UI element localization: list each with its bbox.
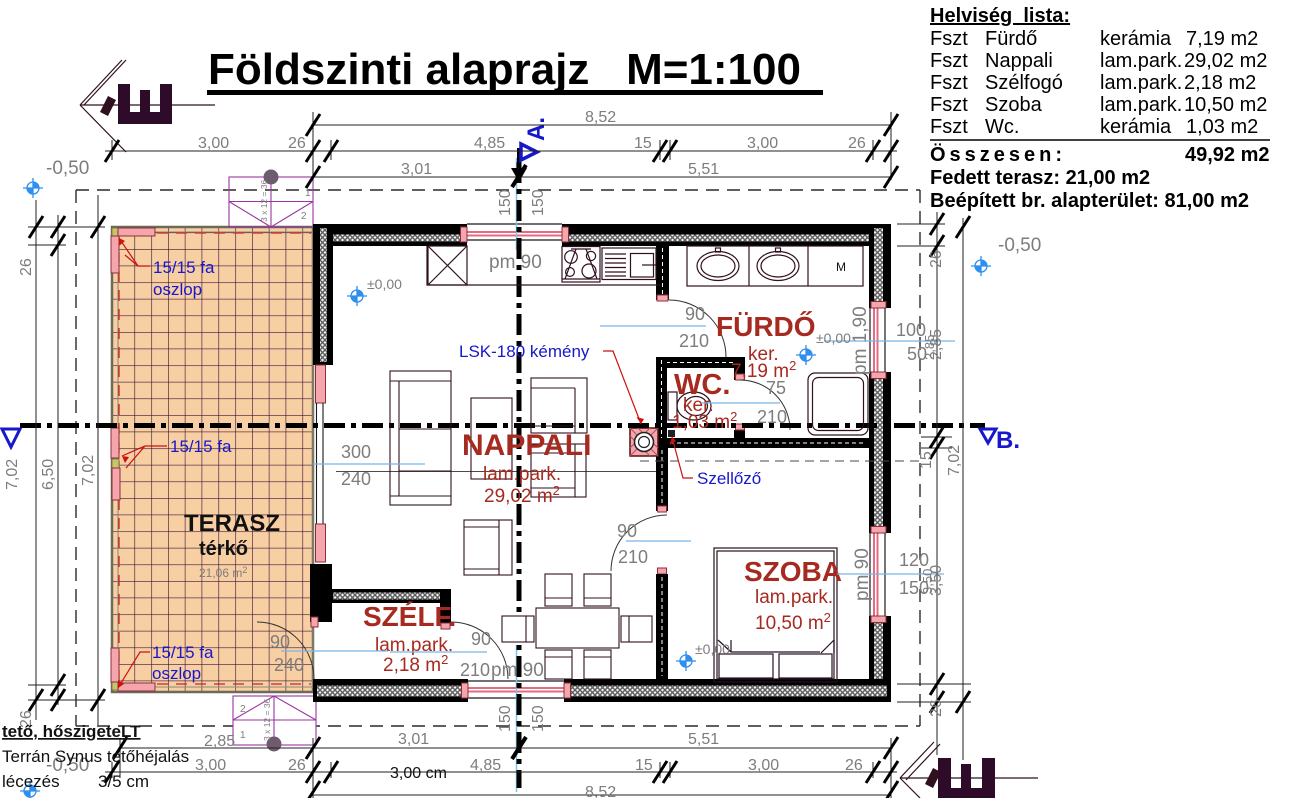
svg-text:Terrán Synus tetőhéjalás: Terrán Synus tetőhéjalás [2, 747, 189, 766]
svg-text:3,01: 3,01 [401, 161, 432, 178]
svg-text:2,85: 2,85 [204, 733, 235, 750]
svg-text:210: 210 [460, 660, 490, 680]
svg-text:2: 2 [301, 211, 307, 222]
svg-text:±0,00: ±0,00 [816, 330, 851, 346]
svg-text:3,50: 3,50 [928, 565, 945, 596]
svg-text:8,52: 8,52 [585, 784, 616, 798]
svg-text:7,19 m2: 7,19 m2 [1186, 28, 1258, 50]
svg-text:±0,00: ±0,00 [695, 641, 730, 657]
svg-text:lam.park.: lam.park. [755, 587, 833, 608]
svg-text:15/15 fa: 15/15 fa [152, 643, 214, 662]
svg-text:4,85: 4,85 [470, 757, 501, 774]
svg-text:SZOBA: SZOBA [744, 556, 842, 587]
svg-text:26: 26 [928, 699, 945, 717]
svg-text:29,02 m2: 29,02 m2 [1184, 50, 1267, 72]
svg-text:6,50: 6,50 [40, 459, 57, 490]
svg-text:1: 1 [240, 730, 246, 741]
svg-text:26: 26 [928, 250, 945, 268]
svg-text:15: 15 [634, 135, 652, 152]
svg-text:Nappali: Nappali [985, 50, 1053, 72]
svg-text:8,52: 8,52 [585, 109, 616, 126]
svg-text:M: M [836, 260, 846, 274]
svg-text:Fürdő: Fürdő [985, 28, 1037, 50]
svg-text:2: 2 [240, 704, 246, 715]
svg-text:Fedett terasz: 21,00 m2: Fedett terasz: 21,00 m2 [930, 167, 1150, 189]
svg-text:210: 210 [679, 331, 709, 351]
svg-text:7,19 m2: 7,19 m2 [731, 358, 796, 382]
svg-text:pm 90: pm 90 [489, 252, 542, 273]
svg-text:TERASZ: TERASZ [184, 510, 280, 537]
svg-text:240: 240 [341, 469, 371, 489]
svg-text:300: 300 [341, 442, 371, 462]
svg-text:1: 1 [305, 188, 311, 199]
svg-text:3,01: 3,01 [398, 731, 429, 748]
svg-text:Fszt: Fszt [930, 94, 968, 116]
svg-text:5,51: 5,51 [688, 731, 719, 748]
svg-text:SZÉLF.: SZÉLF. [363, 601, 456, 632]
svg-text:Wc.: Wc. [985, 116, 1019, 138]
svg-text:210: 210 [618, 547, 648, 567]
svg-text:LSK-180 kémény: LSK-180 kémény [459, 342, 590, 361]
svg-text:10,50 m2: 10,50 m2 [1184, 94, 1267, 116]
svg-text:Összesen:: Összesen: [930, 143, 1066, 166]
svg-text:90: 90 [685, 304, 705, 324]
svg-text:4,85: 4,85 [474, 135, 505, 152]
svg-text:Fszt: Fszt [930, 50, 968, 72]
svg-text:Földszinti alaprajz M=1:100: Földszinti alaprajz M=1:100 [208, 45, 801, 94]
svg-text:Szélfogó: Szélfogó [985, 72, 1063, 94]
svg-text:120: 120 [899, 550, 929, 570]
svg-text:lam.park.: lam.park. [1100, 50, 1182, 72]
svg-text:3,00: 3,00 [195, 757, 226, 774]
svg-text:240: 240 [274, 655, 304, 675]
svg-text:3,00: 3,00 [747, 135, 778, 152]
svg-text:3,00 cm: 3,00 cm [390, 765, 447, 782]
svg-text:B.: B. [996, 427, 1020, 454]
svg-text:26: 26 [288, 757, 306, 774]
svg-text:Helviség lista:: Helviség lista: [930, 5, 1070, 27]
svg-text:150: 150 [497, 189, 514, 216]
svg-text:7,02: 7,02 [946, 445, 963, 476]
svg-text:29,02 m2: 29,02 m2 [484, 483, 560, 507]
svg-text:oszlop: oszlop [152, 664, 201, 683]
svg-text:2,18 m2: 2,18 m2 [383, 652, 448, 676]
svg-text:3 x 12 = 36: 3 x 12 = 36 [259, 179, 269, 222]
svg-text:2,85: 2,85 [928, 329, 945, 360]
svg-text:75: 75 [766, 378, 786, 398]
svg-text:15: 15 [918, 451, 935, 469]
svg-text:10,50 m2: 10,50 m2 [755, 610, 831, 634]
svg-text:lécezés: lécezés [2, 772, 60, 791]
svg-text:3 x 12 = 36: 3 x 12 = 36 [262, 698, 272, 741]
svg-text:Fszt: Fszt [930, 72, 968, 94]
svg-text:térkő: térkő [199, 538, 248, 560]
svg-text:210: 210 [757, 407, 787, 427]
svg-text:21,06 m2: 21,06 m2 [199, 565, 247, 580]
svg-text:3,00: 3,00 [198, 135, 229, 152]
svg-text:5,51: 5,51 [688, 161, 719, 178]
svg-text:Beépített br. alapterület: 81,: Beépített br. alapterület: 81,00 m2 [930, 190, 1249, 212]
svg-text:7,02: 7,02 [4, 459, 21, 490]
svg-text:A.: A. [523, 117, 550, 141]
svg-text:±0,00: ±0,00 [367, 276, 402, 292]
svg-text:tető, hőszigeteLT: tető, hőszigeteLT [2, 722, 141, 741]
svg-text:26: 26 [845, 757, 863, 774]
svg-text:Szoba: Szoba [985, 94, 1043, 116]
svg-text:1,03 m2: 1,03 m2 [672, 409, 737, 433]
svg-text:90: 90 [270, 632, 290, 652]
svg-text:Fszt: Fszt [930, 28, 968, 50]
svg-text:2,18 m2: 2,18 m2 [1184, 72, 1256, 94]
svg-text:Fszt: Fszt [930, 116, 968, 138]
svg-text:kerámia: kerámia [1100, 116, 1172, 138]
svg-text:150: 150 [530, 705, 547, 732]
svg-text:26: 26 [288, 135, 306, 152]
svg-text:90: 90 [471, 629, 491, 649]
svg-text:150: 150 [497, 705, 514, 732]
svg-text:15/15 fa: 15/15 fa [153, 258, 215, 277]
svg-text:3,00: 3,00 [748, 757, 779, 774]
svg-text:15/15 fa: 15/15 fa [170, 437, 232, 456]
svg-text:1,03 m2: 1,03 m2 [1186, 116, 1258, 138]
svg-text:-0,50: -0,50 [998, 235, 1041, 256]
svg-text:NAPPALI: NAPPALI [462, 429, 591, 462]
svg-text:26: 26 [18, 258, 35, 276]
svg-text:lam.park.: lam.park. [1100, 94, 1182, 116]
svg-text:150: 150 [530, 189, 547, 216]
svg-text:49,92 m2: 49,92 m2 [1185, 144, 1270, 166]
svg-text:lam.park.: lam.park. [483, 464, 561, 485]
svg-text:lam.park.: lam.park. [1100, 72, 1182, 94]
svg-text:3/5 cm: 3/5 cm [98, 772, 149, 791]
svg-text:FÜRDŐ: FÜRDŐ [716, 311, 816, 342]
svg-text:kerámia: kerámia [1100, 28, 1172, 50]
svg-text:oszlop: oszlop [153, 280, 202, 299]
svg-text:26: 26 [848, 135, 866, 152]
svg-text:15: 15 [635, 757, 653, 774]
svg-text:Szellőző: Szellőző [697, 469, 761, 488]
svg-text:-0,50: -0,50 [46, 158, 89, 179]
svg-text:7,02: 7,02 [80, 455, 97, 486]
svg-text:pm 90: pm 90 [491, 660, 544, 681]
svg-text:90: 90 [617, 521, 637, 541]
